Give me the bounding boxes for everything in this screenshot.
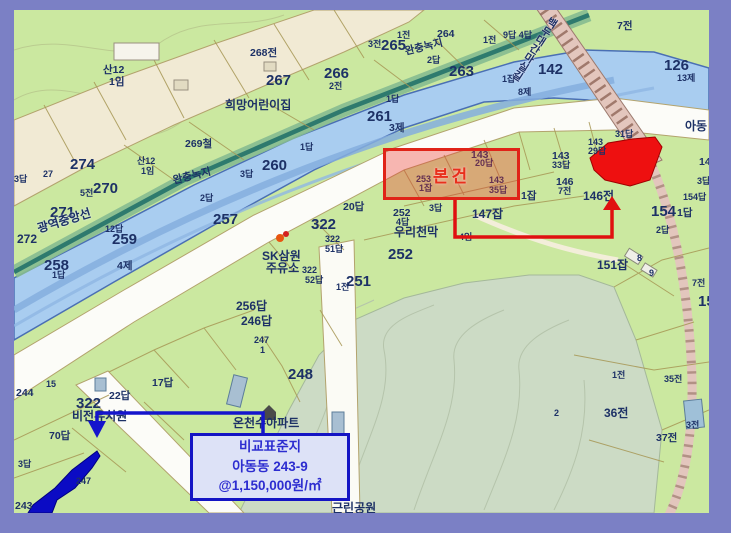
map-label: 1답 xyxy=(677,208,693,219)
map-label: 1답 xyxy=(300,143,313,152)
map-label: 247 xyxy=(254,336,269,345)
map-label: 3전 xyxy=(368,40,381,49)
map-label: 22답 xyxy=(109,391,130,402)
map-label: 1전 xyxy=(483,36,496,45)
appraisal-map-page: { "frame": { "border_color": "#7b80c5" }… xyxy=(0,0,731,533)
map-label: 51답 xyxy=(325,245,343,254)
map-label: 322 xyxy=(325,235,340,244)
map-label: 2답 xyxy=(200,194,213,203)
subject-label: 본건 xyxy=(433,162,470,187)
map-labels: 산121임268전267희망어린이집269철2742705전산121임완충녹지2… xyxy=(14,10,709,513)
map-label: 3답 xyxy=(429,204,442,213)
map-label: 267 xyxy=(266,73,291,88)
map-label: 3답 xyxy=(18,460,31,469)
map-label: 35전 xyxy=(664,375,682,384)
map-label: 온천수아파트 xyxy=(233,417,299,429)
map-label: 36전 xyxy=(604,407,628,419)
map-label: 5전 xyxy=(80,189,93,198)
map-label: 266 xyxy=(324,66,349,81)
map-label: 3답 xyxy=(240,170,253,179)
map-label: 우리천막 xyxy=(394,226,438,238)
map-label: 265 xyxy=(381,38,406,53)
map-label: 142 xyxy=(538,62,563,77)
map-label: 9 xyxy=(649,269,654,278)
map-label: 151잡 xyxy=(597,259,628,271)
map-label: 70답 xyxy=(49,431,70,442)
map-label: 263 xyxy=(449,64,474,79)
map-label: 3답 xyxy=(14,175,27,184)
map-label: 아동 xyxy=(685,120,707,132)
map-label: 1전 xyxy=(397,31,410,40)
map-label: 비전유치원 xyxy=(72,410,127,422)
map-label: 126 xyxy=(664,58,689,73)
map-label: 256답 xyxy=(236,300,267,312)
map-label: 248 xyxy=(288,367,313,382)
map-label: 2 xyxy=(554,409,559,418)
map-label: 154답 xyxy=(683,193,706,202)
map-label: 260 xyxy=(262,158,287,173)
map-label: 4제 xyxy=(117,261,133,272)
map-label: 3답 xyxy=(697,177,709,186)
map-label: 147 xyxy=(699,157,709,168)
map-label: 17답 xyxy=(152,378,173,389)
comparison-unit-price: @1,150,000원/㎡ xyxy=(219,478,322,495)
map-label: 37전 xyxy=(656,433,677,444)
comparison-parcel-id: 아동동 243-9 xyxy=(232,459,308,476)
subject-annotation-box: 본건 xyxy=(383,148,520,200)
map-label: 272 xyxy=(17,233,37,245)
map-label: 희망어린이집 xyxy=(225,99,291,111)
map-label: 9답 4답 xyxy=(503,31,532,40)
comparison-title: 비교표준지 xyxy=(239,439,301,456)
map-label: 269철 xyxy=(185,139,212,150)
map-label: 주유소 xyxy=(266,262,299,274)
map-label: 146전 xyxy=(583,190,614,202)
map-label: 27 xyxy=(43,170,53,179)
map-label: 근린공원 xyxy=(332,502,376,513)
map-label: 7전 xyxy=(558,187,571,196)
map-label: 251 xyxy=(346,274,371,289)
map-label: 268전 xyxy=(250,48,277,59)
map-label: 7전 xyxy=(617,21,633,32)
map-label: 243 xyxy=(15,501,33,512)
map-label: 2답 xyxy=(656,226,669,235)
map-label: 13제 xyxy=(677,74,695,83)
map-label: 270 xyxy=(93,181,118,196)
map-label: 154 xyxy=(651,204,676,219)
map-label: 1답 xyxy=(386,95,399,104)
map-label: 1전 xyxy=(336,283,349,292)
map-label: 2전 xyxy=(329,82,342,91)
map-label: 247 xyxy=(76,477,91,486)
map-label: 33답 xyxy=(552,161,570,170)
map-label: 3전 xyxy=(686,421,699,430)
map-label: 20답 xyxy=(343,202,364,213)
map-label: 1임 xyxy=(141,167,154,176)
map-label: 259 xyxy=(112,232,137,247)
map-label: 322 xyxy=(311,217,336,232)
map-label: 4임 xyxy=(459,233,472,242)
map-label: 3제 xyxy=(389,123,405,134)
map-label: 8 xyxy=(637,254,642,263)
map-label: 15 xyxy=(46,380,56,389)
map-label: 244 xyxy=(16,388,34,399)
map-label: 257 xyxy=(213,212,238,227)
map-label: 52답 xyxy=(305,276,323,285)
map-label: 31답 xyxy=(615,130,633,139)
comparison-annotation-box: 비교표준지 아동동 243-9 @1,150,000원/㎡ xyxy=(190,433,350,501)
map-label: 29답 xyxy=(588,147,606,156)
map-label: 2답 xyxy=(427,56,440,65)
map-label: 1답 xyxy=(52,271,65,280)
map-label: 8제 xyxy=(518,88,531,97)
map-label: 산12 xyxy=(137,157,155,166)
map-label: 252 xyxy=(388,247,413,262)
map-label: 274 xyxy=(70,157,95,172)
map-label: 산12 xyxy=(103,65,124,76)
map-label: 322 xyxy=(302,266,317,275)
map-label: 1잡 xyxy=(521,191,537,202)
cadastral-map: 산121임268전267희망어린이집269철2742705전산121임완충녹지2… xyxy=(14,10,709,513)
map-label: 1임 xyxy=(109,77,125,88)
map-label: 7전 xyxy=(692,279,705,288)
map-label: 1 xyxy=(260,346,265,355)
map-label: 154 xyxy=(698,294,709,309)
map-label: 246답 xyxy=(241,315,272,327)
map-label: 1전 xyxy=(612,371,625,380)
map-label: 완충녹지 xyxy=(172,167,212,187)
map-label: 147잡 xyxy=(472,208,503,220)
